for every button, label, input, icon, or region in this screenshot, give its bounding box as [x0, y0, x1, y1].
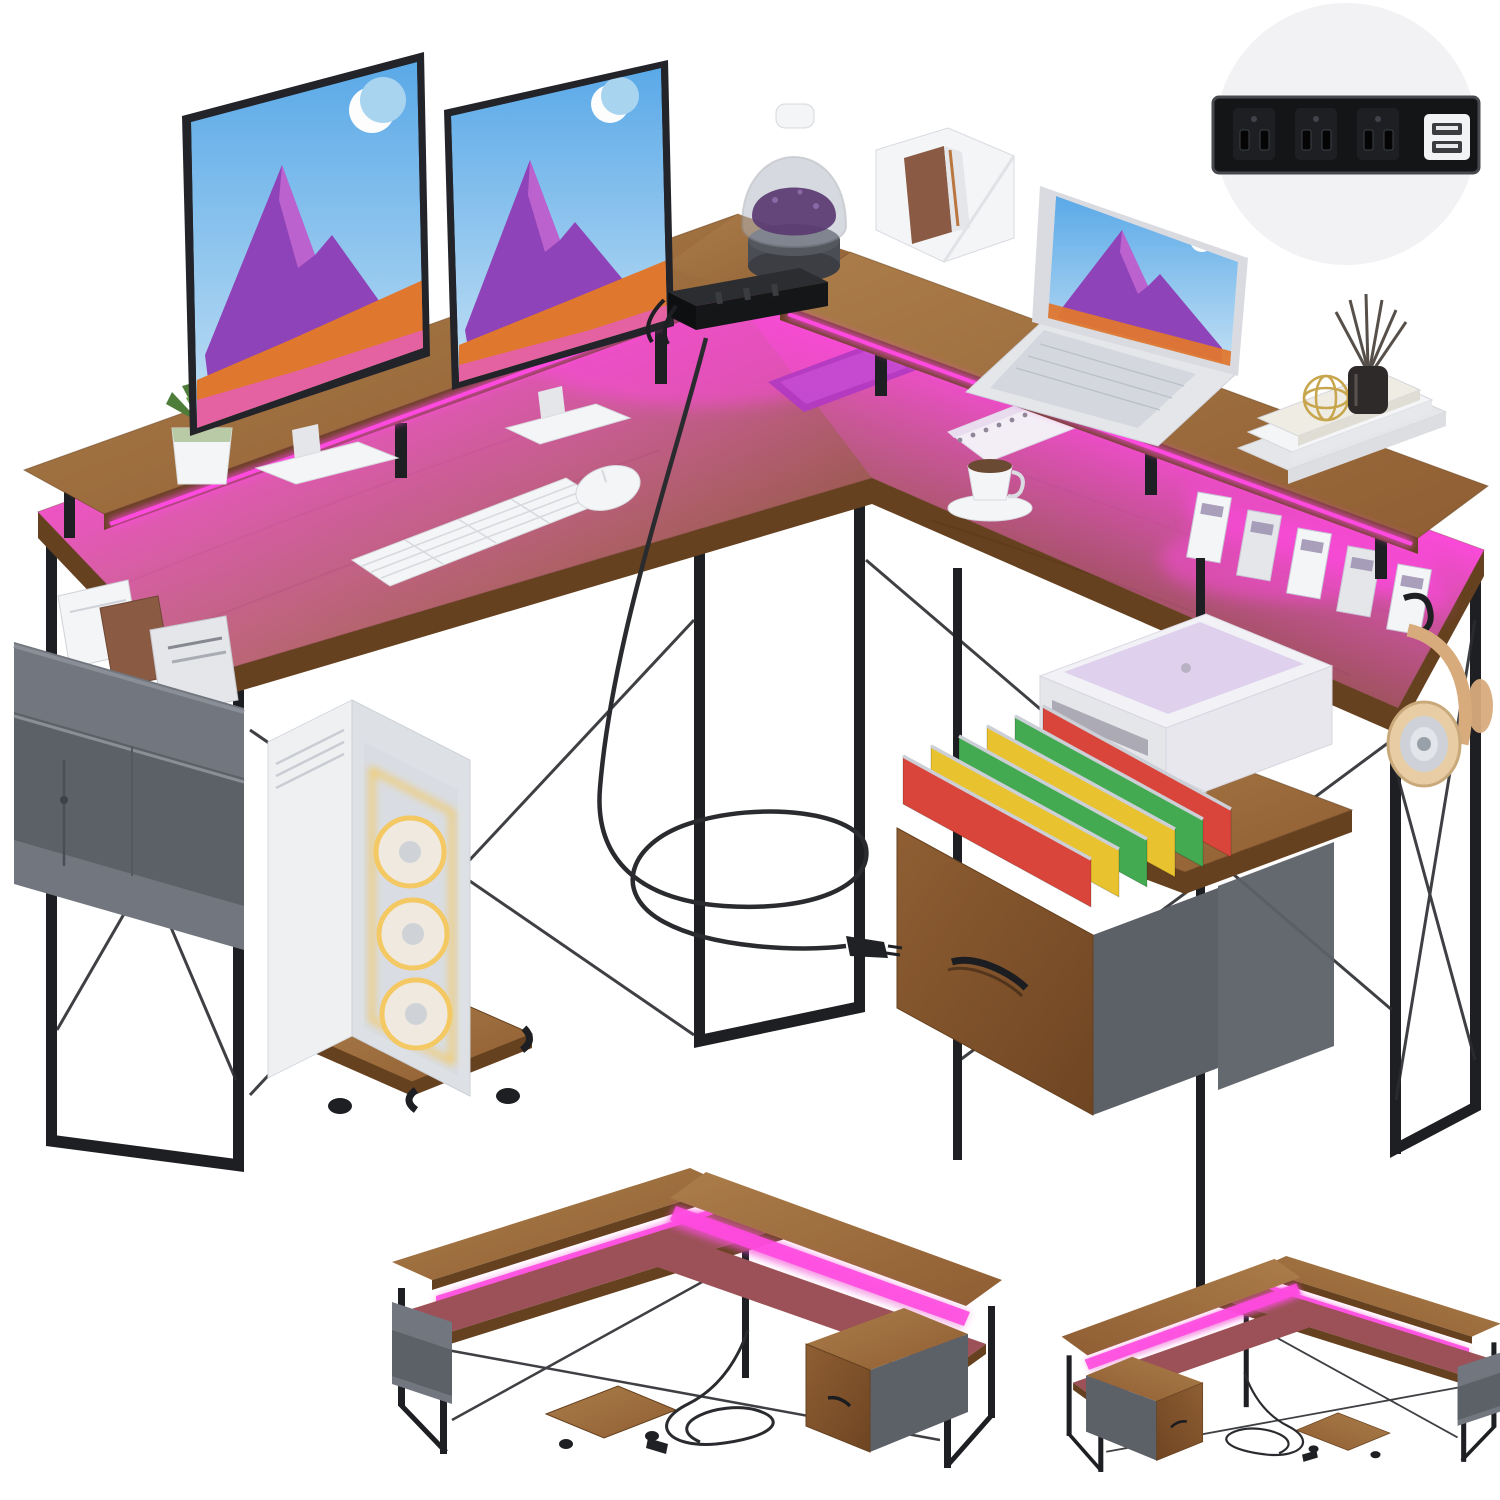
ac-outlet [1233, 108, 1275, 160]
variant-cabinet [806, 1308, 968, 1452]
cabinet-back-panel [1218, 842, 1334, 1090]
product-photo-gaming-desk [0, 0, 1500, 1500]
desk-variant-right [1062, 1256, 1500, 1472]
scene-svg [0, 0, 1500, 1500]
humidifier [742, 104, 846, 282]
power-plug [846, 936, 888, 958]
ac-outlet [1357, 108, 1399, 160]
pc-tower [268, 700, 470, 1096]
book-stack-decor [1238, 294, 1446, 484]
power-strip-inset [1213, 3, 1479, 265]
variant-cart [546, 1386, 676, 1449]
magazine-file-holder [876, 128, 1014, 262]
variant-cord [667, 1330, 774, 1444]
printer-cabinet-unit [897, 558, 1352, 1298]
desk-variant-left [392, 1168, 1002, 1468]
usb-module [1424, 114, 1470, 160]
ac-outlets [1233, 108, 1399, 160]
ac-outlet [1295, 108, 1337, 160]
rgb-fans [376, 818, 450, 1048]
pc-tower-cart [268, 700, 532, 1114]
